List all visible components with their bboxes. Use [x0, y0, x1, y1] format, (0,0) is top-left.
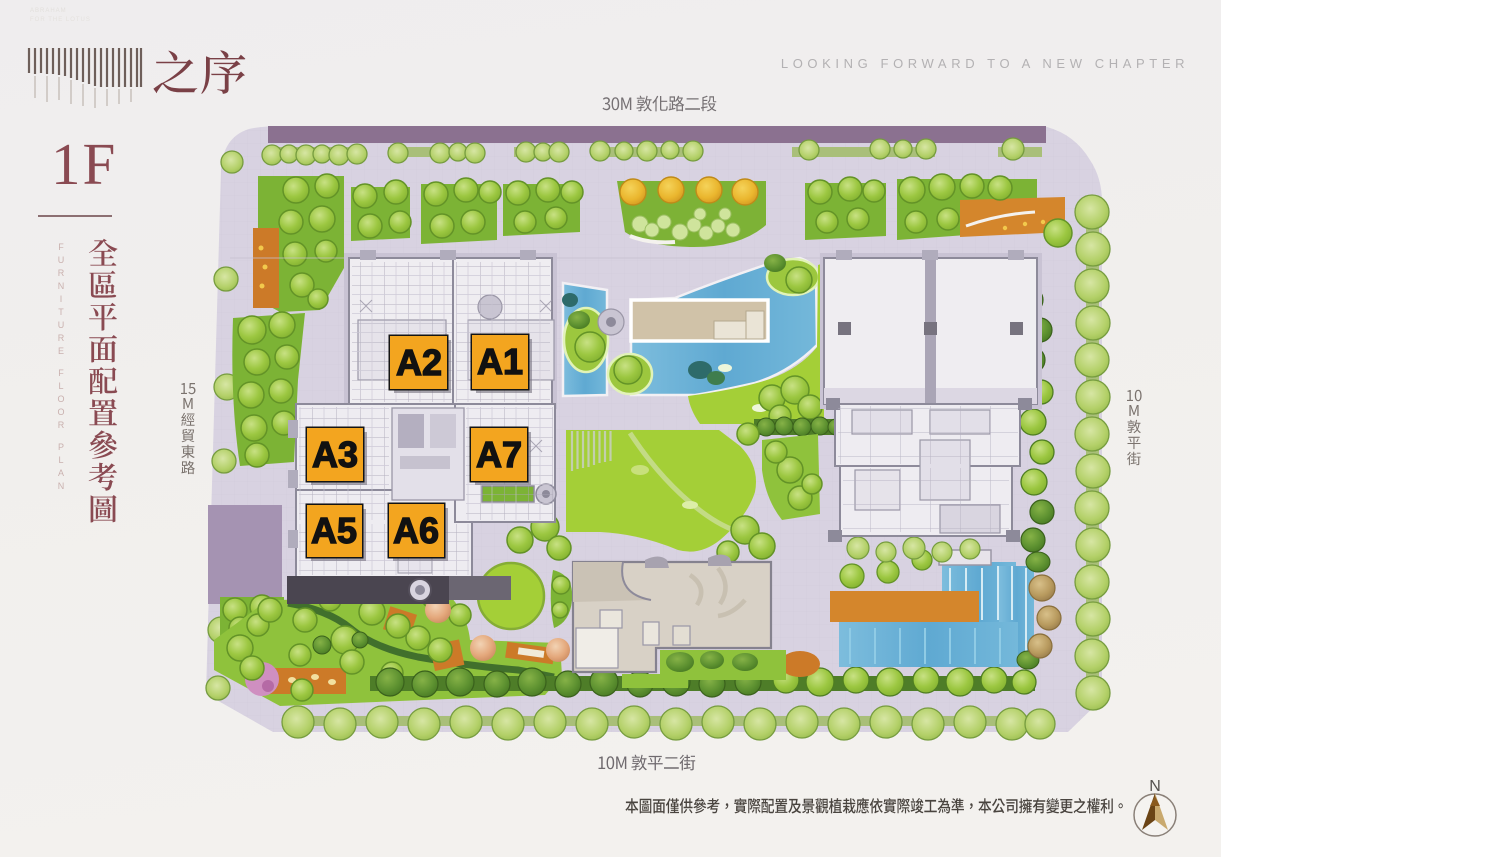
svg-text:F: F [58, 368, 64, 378]
svg-text:R: R [58, 420, 65, 430]
svg-text:A2: A2 [396, 342, 442, 383]
svg-text:T: T [58, 307, 64, 317]
svg-text:A6: A6 [393, 510, 439, 551]
svg-text:U: U [58, 255, 65, 265]
svg-text:I: I [60, 294, 63, 304]
svg-text:A1: A1 [477, 341, 523, 382]
svg-text:E: E [58, 346, 64, 356]
svg-text:R: R [58, 268, 65, 278]
svg-text:O: O [57, 394, 64, 404]
svg-text:LOOKING FORWARD TO A NEW CHAPT: LOOKING FORWARD TO A NEW CHAPTER [781, 56, 1189, 71]
svg-text:A: A [58, 468, 64, 478]
svg-text:N: N [58, 281, 65, 291]
svg-text:R: R [58, 333, 65, 343]
svg-text:ABRAHAM: ABRAHAM [30, 8, 67, 14]
svg-text:1F: 1F [51, 131, 117, 197]
svg-text:A7: A7 [476, 434, 522, 475]
svg-text:A5: A5 [311, 510, 357, 551]
svg-text:U: U [58, 320, 65, 330]
svg-text:N: N [58, 481, 65, 491]
svg-text:L: L [58, 455, 63, 465]
svg-text:F: F [58, 242, 64, 252]
svg-text:L: L [58, 381, 63, 391]
svg-text:O: O [57, 407, 64, 417]
svg-text:P: P [58, 442, 64, 452]
svg-text:FOR THE LOTUS: FOR THE LOTUS [30, 17, 91, 23]
svg-text:A3: A3 [312, 434, 358, 475]
svg-text:N: N [1149, 778, 1161, 795]
